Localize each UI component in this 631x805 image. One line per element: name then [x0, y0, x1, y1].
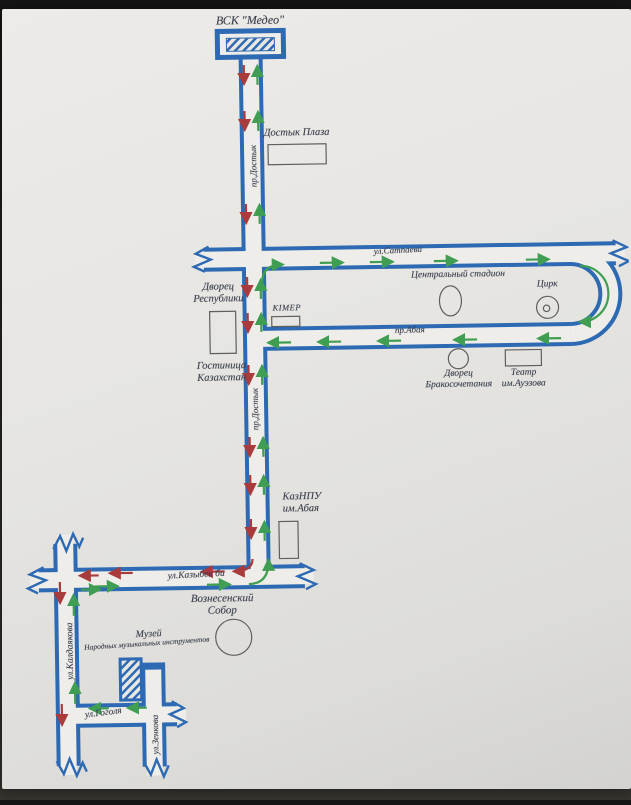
label-circus: Цирк	[527, 279, 567, 290]
map-content: ВСК "Медео" Достык Плаза ул.Сатпаева Дво…	[0, 0, 631, 805]
kaznpu-building	[279, 521, 299, 558]
medeo-hatch	[226, 38, 274, 52]
label-cathedral: Вознесенский Собор	[179, 592, 265, 618]
label-wedding-palace: Дворец Бракосочетания	[412, 368, 506, 391]
label-kimep: КІМЕР	[272, 303, 312, 313]
route-map-drawing	[0, 0, 631, 805]
wedding-palace-shape	[448, 349, 468, 369]
label-hotel-kazakhstan: Гостиница Казахстан	[189, 360, 253, 385]
label-auezov-theatre: Театр им.Ауэзова	[494, 367, 554, 389]
stadium-shape	[439, 286, 461, 316]
label-kaldayakova-street: ул.Калдаякова	[65, 605, 77, 697]
palace-republic-building	[210, 311, 237, 353]
label-dostyk-avenue-upper: пр.Достык	[248, 136, 259, 196]
label-medeo: ВСК "Медео"	[194, 13, 306, 28]
label-zenkova-street: ул.Зенкова	[150, 698, 161, 772]
label-kaznpu: КазНПУ им.Абая	[282, 491, 342, 515]
kimep-building	[272, 316, 300, 326]
label-dostyk-plaza: Достык Плаза	[264, 126, 354, 139]
label-palace-republic: Дворец Республики	[186, 281, 250, 306]
theatre-building	[505, 349, 541, 366]
photographed-map: ВСК "Медео" Достык Плаза ул.Сатпаева Дво…	[0, 0, 631, 800]
cathedral-shape	[215, 619, 252, 656]
label-central-stadium: Центральный стадион	[404, 269, 512, 281]
route-arrows-red	[52, 65, 255, 724]
label-dostyk-avenue-lower: пр.Достык	[250, 378, 261, 440]
dostyk-plaza-building	[268, 144, 326, 165]
circus-shape	[536, 296, 558, 318]
circus-dot	[543, 305, 549, 311]
label-abaya-avenue: пр.Абая	[395, 324, 445, 336]
museum-building	[120, 659, 142, 700]
